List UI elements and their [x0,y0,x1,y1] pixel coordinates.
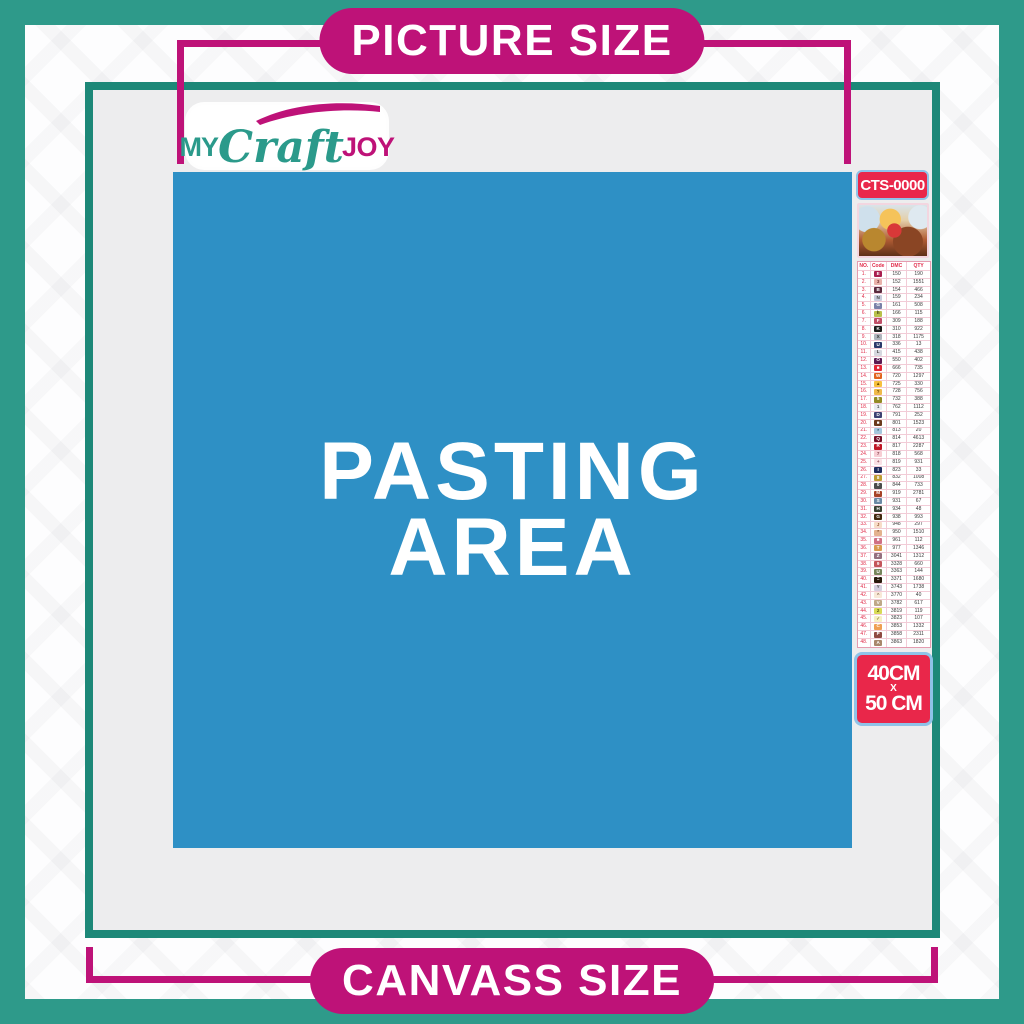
legend-code: V [871,600,887,608]
legend-code: Q [871,435,887,443]
legend-header-cell: Code [871,262,887,271]
legend-no: 7. [858,318,871,326]
legend-dmc: 150 [887,271,907,279]
legend-no: 1. [858,271,871,279]
legend-dmc: 3770 [887,592,907,600]
legend-code: G [871,514,887,522]
legend-row: 30.S93167 [858,498,930,506]
legend-qty: 67 [907,498,930,506]
legend-no: 14. [858,373,871,381]
legend-row: 48.A38631820 [858,639,930,647]
legend-qty: 617 [907,600,930,608]
picture-size-banner: PICTURE SIZE [319,8,704,74]
legend-color-swatch: Q [874,436,882,442]
legend-code: H [871,506,887,514]
legend-color-swatch: J [874,522,882,528]
legend-row: 4.N159234 [858,294,930,302]
legend-code: U [871,341,887,349]
legend-code: T [871,545,887,553]
legend-code: P [871,631,887,639]
legend-row: 1.E150190 [858,271,930,279]
legend-color-swatch: V [874,600,882,606]
canvass-size-bracket-right [931,947,938,983]
legend-row: 15.▲725330 [858,381,930,389]
legend-qty: 931 [907,459,930,467]
legend-color-swatch: D [874,412,882,418]
legend-qty: 756 [907,388,930,396]
legend-code: W [871,373,887,381]
legend-header-row: NO.CodeDMCQTY [858,262,930,271]
legend-code: 0 [871,482,887,490]
legend-row: 33.J948297 [858,522,930,530]
legend-dmc: 938 [887,514,907,522]
legend-color-swatch: M [874,491,882,497]
legend-dmc: 3782 [887,600,907,608]
canvass-size-label: CANVASS SIZE [342,956,682,1006]
legend-no: 13. [858,365,871,373]
legend-no: 2. [858,279,871,287]
legend-color-swatch: 7 [874,451,882,457]
legend-dmc: 791 [887,412,907,420]
legend-qty: 993 [907,514,930,522]
legend-dmc: 818 [887,451,907,459]
legend-qty: 1312 [907,553,930,561]
legend-no: 6. [858,310,871,318]
legend-code: L [871,349,887,357]
legend-qty: 115 [907,310,930,318]
legend-row: 26.I82333 [858,467,930,475]
legend-no: 30. [858,498,871,506]
legend-qty: 1112 [907,404,930,412]
legend-qty: 297 [907,522,930,530]
legend-qty: 1175 [907,334,930,342]
legend-qty: 107 [907,615,930,623]
legend-qty: 252 [907,412,930,420]
legend-row: 8.K310922 [858,326,930,334]
legend-color-swatch: ✓ [874,616,882,622]
legend-qty: 568 [907,451,930,459]
legend-dmc: 159 [887,294,907,302]
legend-qty: 1738 [907,584,930,592]
picture-size-bracket-right [844,40,851,164]
legend-code: h [871,310,887,318]
legend-dmc: 154 [887,287,907,295]
legend-dmc: 415 [887,349,907,357]
legend-row: 36.T9771346 [858,545,930,553]
legend-row: 38.93328660 [858,561,930,569]
legend-dmc: 762 [887,404,907,412]
legend-row: 42.^377040 [858,592,930,600]
legend-qty: 1680 [907,576,930,584]
legend-dmc: 728 [887,388,907,396]
legend-qty: 40 [907,592,930,600]
legend-color-swatch: + [874,459,882,465]
legend-row: 23.R8172287 [858,443,930,451]
legend-dmc: 3371 [887,576,907,584]
legend-qty: 438 [907,349,930,357]
legend-no: 32. [858,514,871,522]
legend-dmc: 817 [887,443,907,451]
legend-no: 11. [858,349,871,357]
legend-row: 40.=33711680 [858,576,930,584]
canvass-size-banner: CANVASS SIZE [310,948,714,1014]
legend-code: 3 [871,279,887,287]
legend-qty: 466 [907,287,930,295]
legend-row: 25.+819931 [858,459,930,467]
legend-code: ■ [871,537,887,545]
legend-dmc: 931 [887,498,907,506]
legend-qty: 2287 [907,443,930,451]
legend-color-swatch: ■ [874,538,882,544]
legend-dmc: 823 [887,467,907,475]
legend-qty: 112 [907,537,930,545]
legend-color-swatch: 3 [874,279,882,285]
legend-dmc: 844 [887,482,907,490]
legend-color-swatch: I [874,467,882,473]
legend-row: 2.31521551 [858,279,930,287]
legend-dmc: 801 [887,420,907,428]
legend-row: 34.*9501510 [858,529,930,537]
legend-row: 45.✓3823107 [858,615,930,623]
legend-row: 10.U33613 [858,341,930,349]
legend-color-swatch: 1 [874,404,882,410]
legend-no: 41. [858,584,871,592]
legend-dmc: 3363 [887,568,907,576]
legend-color-swatch: S [874,498,882,504]
legend-no: 15. [858,381,871,389]
legend-qty: 119 [907,608,930,616]
legend-color-swatch: * [874,428,882,434]
legend-row: 11.L415438 [858,349,930,357]
legend-code: A [871,639,887,647]
legend-row: 28.0844733 [858,482,930,490]
picture-size-label: PICTURE SIZE [351,16,672,66]
legend-color-swatch: ■ [874,420,882,426]
legend-row: 5.G161508 [858,302,930,310]
legend-row: 35.■961112 [858,537,930,545]
legend-code: * [871,428,887,436]
legend-row: 32.G938993 [858,514,930,522]
legend-color-swatch: R [874,444,882,450]
legend-color-swatch: ▲ [874,381,882,387]
legend-code: S [871,498,887,506]
legend-no: 8. [858,326,871,334]
legend-color-swatch: Y [874,585,882,591]
legend-code: F [871,318,887,326]
legend-qty: 402 [907,357,930,365]
legend-code: ■ [871,365,887,373]
legend-dmc: 814 [887,435,907,443]
legend-no: 33. [858,522,871,530]
legend-color-swatch: = [874,577,882,583]
legend-no: 25. [858,459,871,467]
legend-no: 40. [858,576,871,584]
legend-qty: 1510 [907,529,930,537]
logo-text-joy: JOY [342,134,395,161]
legend-row: 6.h166115 [858,310,930,318]
legend-color-swatch: C [874,624,882,630]
legend-row: 22.Q8144613 [858,435,930,443]
legend-no: 35. [858,537,871,545]
legend-qty: 190 [907,271,930,279]
legend-no: 39. [858,568,871,576]
legend-no: 43. [858,600,871,608]
size-width-label: 40CM [867,664,919,684]
legend-no: 46. [858,623,871,631]
legend-no: 3. [858,287,871,295]
legend-qty: 4613 [907,435,930,443]
legend-header-cell: NO. [858,262,871,271]
legend-dmc: 161 [887,302,907,310]
legend-no: 12. [858,357,871,365]
color-legend-table: NO.CodeDMCQTY 1.E1501902.315215513.B1544… [857,261,931,648]
legend-color-swatch: B [874,287,882,293]
legend-no: 45. [858,615,871,623]
legend-row: 7.F309188 [858,318,930,326]
legend-code: X [871,334,887,342]
legend-color-swatch: X [874,334,882,340]
legend-code: C [871,623,887,631]
legend-code: O [871,357,887,365]
legend-qty: 33 [907,467,930,475]
legend-dmc: 3041 [887,553,907,561]
legend-qty: 388 [907,396,930,404]
legend-color-swatch: A [874,640,882,646]
legend-color-swatch: P [874,632,882,638]
legend-row: 27.88321008 [858,475,930,483]
legend-qty: 330 [907,381,930,389]
legend-no: 29. [858,490,871,498]
legend-qty: 1008 [907,475,930,483]
legend-color-swatch: U [874,342,882,348]
legend-dmc: 977 [887,545,907,553]
legend-color-swatch: H [874,506,882,512]
legend-row: 17.5732388 [858,396,930,404]
legend-dmc: 3823 [887,615,907,623]
legend-no: 22. [858,435,871,443]
legend-no: 23. [858,443,871,451]
legend-color-swatch: ^ [874,592,882,598]
legend-qty: 660 [907,561,930,569]
legend-no: 34. [858,529,871,537]
legend-dmc: 720 [887,373,907,381]
legend-no: 27. [858,475,871,483]
product-code-label: CTS-0000 [860,177,924,194]
legend-code: 1 [871,404,887,412]
legend-no: 5. [858,302,871,310]
legend-code: Y [871,584,887,592]
legend-no: 38. [858,561,871,569]
legend-header-cell: QTY [907,262,930,271]
legend-row: 43.V3782617 [858,600,930,608]
legend-qty: 508 [907,302,930,310]
legend-color-swatch: ? [874,389,882,395]
legend-dmc: 3819 [887,608,907,616]
canvass-size-bracket-left [86,947,93,983]
legend-code: 9 [871,561,887,569]
legend-color-swatch: Z [874,553,882,559]
legend-code: K [871,326,887,334]
legend-color-swatch: W [874,373,882,379]
legend-row: 18.17621112 [858,404,930,412]
legend-qty: 1297 [907,373,930,381]
legend-no: 4. [858,294,871,302]
legend-color-swatch: 2 [874,608,882,614]
legend-row: 39.U3363144 [858,568,930,576]
legend-color-swatch: G [874,514,882,520]
legend-code: 5 [871,396,887,404]
size-height-label: 50 CM [865,694,922,714]
legend-no: 16. [858,388,871,396]
legend-dmc: 919 [887,490,907,498]
legend-row: 19.D791252 [858,412,930,420]
legend-no: 48. [858,639,871,647]
legend-no: 31. [858,506,871,514]
legend-dmc: 550 [887,357,907,365]
legend-dmc: 3863 [887,639,907,647]
legend-color-swatch: ■ [874,365,882,371]
legend-dmc: 961 [887,537,907,545]
legend-code: U [871,568,887,576]
legend-qty: 144 [907,568,930,576]
legend-qty: 1523 [907,420,930,428]
legend-row: 9.X3181175 [858,334,930,342]
legend-code: ? [871,388,887,396]
legend-row: 24.7818568 [858,451,930,459]
legend-dmc: 310 [887,326,907,334]
legend-code: R [871,443,887,451]
legend-dmc: 813 [887,428,907,436]
legend-code: ✓ [871,615,887,623]
legend-dmc: 832 [887,475,907,483]
legend-row: 21.*81320 [858,428,930,436]
legend-row: 20.■8011523 [858,420,930,428]
legend-row: 37.Z30411312 [858,553,930,561]
legend-dmc: 934 [887,506,907,514]
legend-color-swatch: 0 [874,483,882,489]
legend-dmc: 819 [887,459,907,467]
legend-dmc: 666 [887,365,907,373]
legend-no: 18. [858,404,871,412]
legend-qty: 1332 [907,623,930,631]
legend-dmc: 3328 [887,561,907,569]
legend-code: 7 [871,451,887,459]
design-thumbnail [857,203,929,258]
legend-color-swatch: O [874,358,882,364]
legend-color-swatch: F [874,318,882,324]
product-code-badge: CTS-0000 [856,170,929,200]
legend-color-swatch: h [874,311,882,317]
legend-no: 37. [858,553,871,561]
legend-row: 41.Y37431738 [858,584,930,592]
legend-code: 8 [871,475,887,483]
legend-code: * [871,529,887,537]
legend-code: = [871,576,887,584]
legend-row: 47.P38582311 [858,631,930,639]
legend-color-swatch: * [874,530,882,536]
legend-code: D [871,412,887,420]
legend-qty: 48 [907,506,930,514]
legend-code: E [871,271,887,279]
pasting-area-line1: PASTING [319,434,705,510]
legend-row: 3.B154466 [858,287,930,295]
legend-dmc: 3743 [887,584,907,592]
legend-code: I [871,467,887,475]
legend-no: 19. [858,412,871,420]
legend-color-swatch: 8 [874,475,882,481]
legend-color-swatch: G [874,303,882,309]
legend-no: 10. [858,341,871,349]
legend-color-swatch: 5 [874,397,882,403]
legend-color-swatch: N [874,295,882,301]
pasting-area-line2: AREA [388,510,636,586]
legend-color-swatch: 9 [874,561,882,567]
legend-code: ■ [871,420,887,428]
legend-color-swatch: T [874,545,882,551]
legend-no: 24. [858,451,871,459]
legend-row: 46.C38531332 [858,623,930,631]
legend-qty: 188 [907,318,930,326]
legend-code: ^ [871,592,887,600]
legend-dmc: 318 [887,334,907,342]
legend-qty: 1820 [907,639,930,647]
legend-no: 47. [858,631,871,639]
legend-dmc: 732 [887,396,907,404]
legend-dmc: 725 [887,381,907,389]
legend-qty: 1346 [907,545,930,553]
legend-dmc: 166 [887,310,907,318]
legend-color-swatch: E [874,271,882,277]
legend-code: ▲ [871,381,887,389]
legend-code: M [871,490,887,498]
legend-qty: 20 [907,428,930,436]
legend-qty: 1551 [907,279,930,287]
pasting-area: PASTING AREA [173,172,852,848]
legend-no: 36. [858,545,871,553]
legend-no: 20. [858,420,871,428]
legend-dmc: 3858 [887,631,907,639]
legend-color-swatch: L [874,350,882,356]
legend-qty: 735 [907,365,930,373]
legend-dmc: 309 [887,318,907,326]
canvas-size-badge: 40CM X 50 CM [854,652,933,726]
legend-no: 21. [858,428,871,436]
mycraftjoy-logo: MY Craft JOY [188,105,386,167]
legend-code: 2 [871,608,887,616]
legend-row: 14.W7201297 [858,373,930,381]
legend-row: 44.23819119 [858,608,930,616]
legend-code: Z [871,553,887,561]
logo-swash-icon [252,99,384,129]
legend-code: G [871,302,887,310]
legend-dmc: 948 [887,522,907,530]
legend-qty: 13 [907,341,930,349]
legend-row: 12.O550402 [858,357,930,365]
legend-code: N [871,294,887,302]
legend-code: B [871,287,887,295]
legend-header-cell: DMC [887,262,907,271]
legend-code: J [871,522,887,530]
logo-text-my: MY [180,134,219,161]
legend-qty: 922 [907,326,930,334]
legend-code: + [871,459,887,467]
logo-text-craft: Craft [218,130,344,165]
legend-qty: 2781 [907,490,930,498]
legend-dmc: 336 [887,341,907,349]
legend-row: 31.H93448 [858,506,930,514]
legend-dmc: 950 [887,529,907,537]
legend-dmc: 152 [887,279,907,287]
